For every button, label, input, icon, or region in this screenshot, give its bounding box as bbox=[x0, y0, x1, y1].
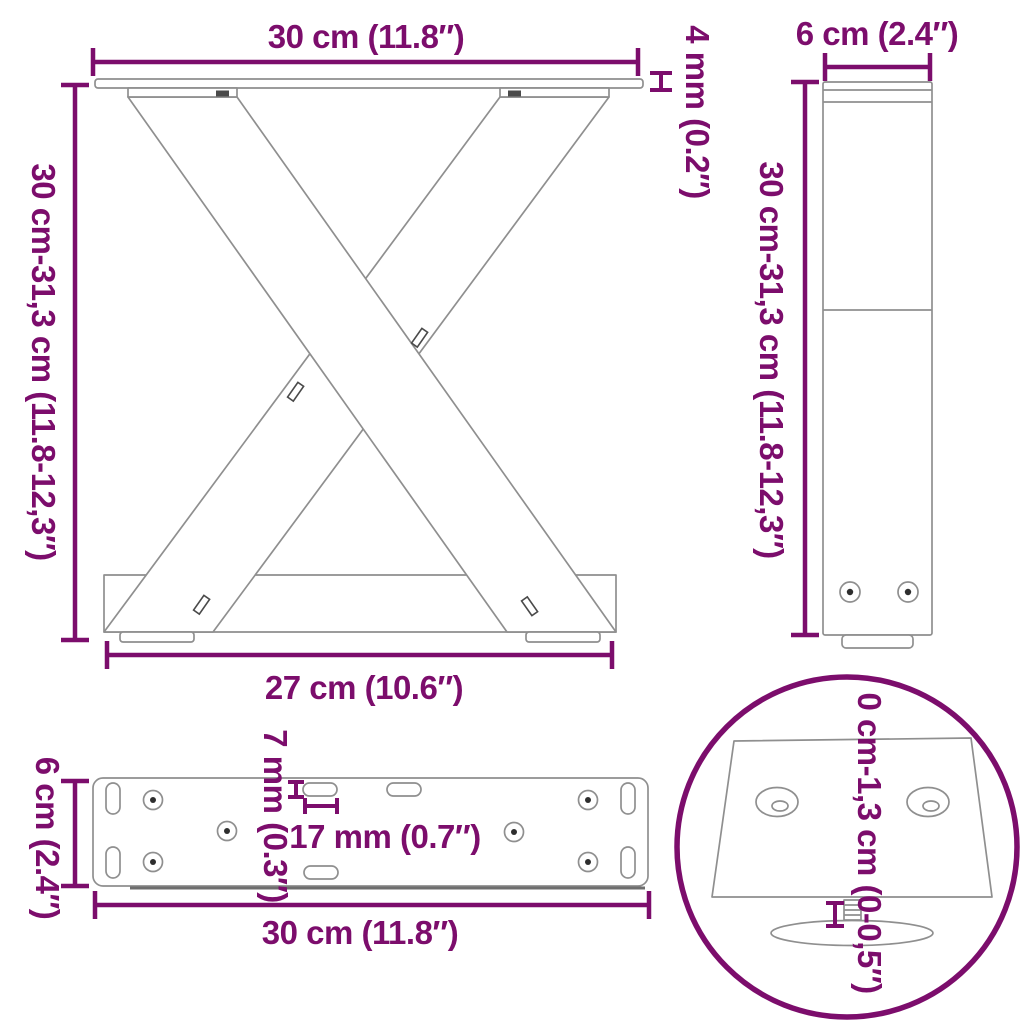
slot-hole bbox=[387, 783, 421, 796]
screw-head bbox=[756, 788, 798, 817]
screw bbox=[840, 582, 860, 602]
top-mounting-plate bbox=[95, 79, 643, 88]
slot-hole bbox=[304, 866, 338, 879]
slot-hole bbox=[621, 783, 635, 814]
front-width-bottom-label: 27 cm (10.6″) bbox=[265, 669, 463, 706]
foot-pad-right bbox=[526, 632, 600, 642]
screw-hole bbox=[144, 853, 163, 872]
screw-head bbox=[907, 788, 949, 817]
screw-hole bbox=[144, 791, 163, 810]
leg-profile bbox=[823, 82, 932, 635]
bracket-clamp bbox=[508, 91, 521, 97]
slot-width-label: 7 mm (0.3″) bbox=[257, 729, 294, 903]
side-depth-dimension: 6 cm (2.4″) bbox=[796, 15, 959, 81]
slot-hole bbox=[106, 847, 120, 878]
slot-hole bbox=[621, 847, 635, 878]
plate-depth-dimension: 6 cm (2.4″) bbox=[29, 757, 89, 920]
side-height-label: 30 cm-31,3 cm (11.8-12,3″) bbox=[753, 161, 790, 558]
screw-hole bbox=[218, 822, 237, 841]
mounting-plate-view: 7 mm (0.3″) 17 mm (0.7″) 6 cm (2.4″) 30 … bbox=[29, 729, 649, 951]
product-dimension-diagram: 30 cm (11.8″) 30 cm-31,3 cm (11.8-12,3″)… bbox=[0, 0, 1024, 1024]
side-depth-label: 6 cm (2.4″) bbox=[796, 15, 959, 52]
side-view: 6 cm (2.4″) 30 cm-31,3 cm (11.8-12,3″) bbox=[753, 15, 958, 648]
side-foot-pad bbox=[842, 635, 913, 648]
front-width-top-dimension: 30 cm (11.8″) bbox=[93, 18, 638, 76]
plate-width-dimension: 30 cm (11.8″) bbox=[95, 891, 649, 951]
dimension-diagram-canvas: 30 cm (11.8″) 30 cm-31,3 cm (11.8-12,3″)… bbox=[0, 0, 1024, 1024]
foot-detail-view: 0 cm-1,3 cm (0-0,5″) bbox=[677, 677, 1017, 1017]
plate-thickness-label: 4 mm (0.2″) bbox=[679, 25, 716, 199]
side-height-dimension: 30 cm-31,3 cm (11.8-12,3″) bbox=[753, 82, 819, 635]
plate-width-label: 30 cm (11.8″) bbox=[262, 914, 458, 951]
adjustment-range-label: 0 cm-1,3 cm (0-0,5″) bbox=[851, 692, 888, 993]
screw bbox=[898, 582, 918, 602]
slot-length-label: 17 mm (0.7″) bbox=[289, 818, 480, 855]
slot-hole bbox=[106, 783, 120, 814]
front-width-bottom-dimension: 27 cm (10.6″) bbox=[107, 641, 612, 706]
slot-hole bbox=[303, 783, 337, 796]
front-height-dimension: 30 cm-31,3 cm (11.8-12,3″) bbox=[25, 85, 89, 640]
front-width-top-label: 30 cm (11.8″) bbox=[268, 18, 464, 55]
screw-hole bbox=[579, 853, 598, 872]
front-view: 30 cm (11.8″) 30 cm-31,3 cm (11.8-12,3″)… bbox=[25, 18, 716, 706]
bracket-clamp bbox=[216, 91, 229, 97]
plate-depth-label: 6 cm (2.4″) bbox=[29, 757, 66, 920]
screw-hole bbox=[579, 791, 598, 810]
plate-thickness-dimension: 4 mm (0.2″) bbox=[650, 25, 716, 199]
foot-pad-left bbox=[120, 632, 194, 642]
front-height-label: 30 cm-31,3 cm (11.8-12,3″) bbox=[25, 163, 62, 560]
screw-hole bbox=[505, 823, 524, 842]
